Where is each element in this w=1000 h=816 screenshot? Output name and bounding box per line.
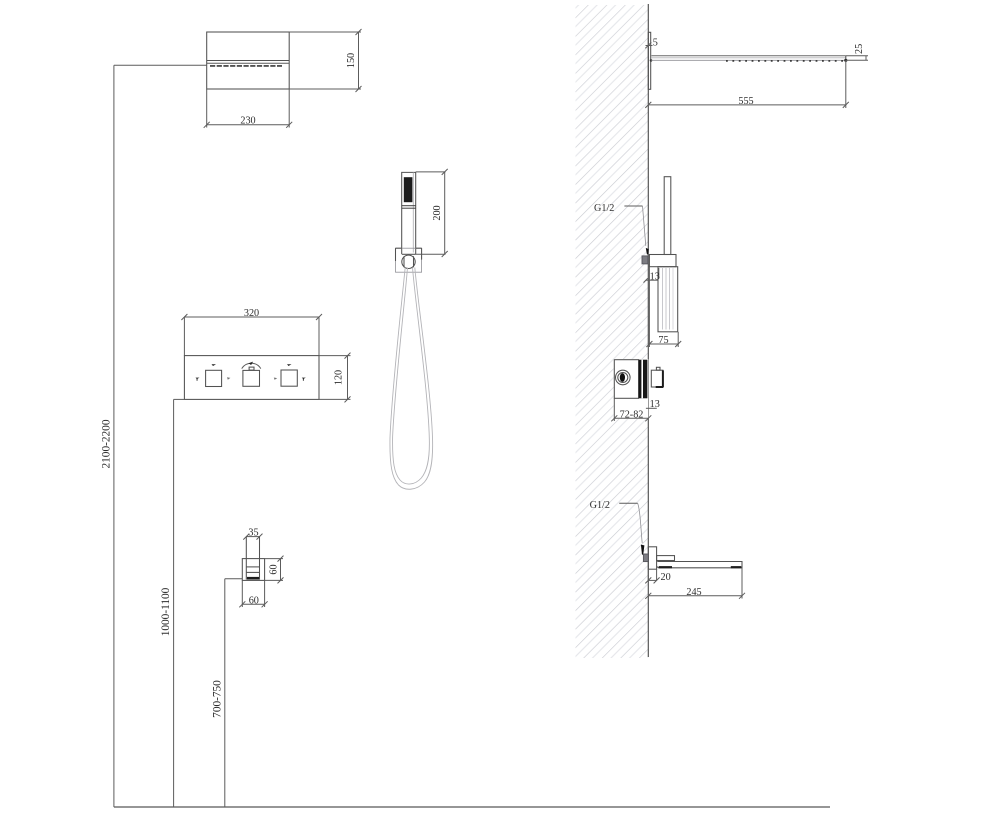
svg-text:150: 150 <box>346 53 357 68</box>
svg-text:G1/2: G1/2 <box>594 203 614 214</box>
svg-text:35: 35 <box>248 528 258 539</box>
svg-text:60: 60 <box>269 564 280 574</box>
svg-text:200: 200 <box>432 205 443 220</box>
svg-text:120: 120 <box>334 370 345 385</box>
svg-text:25: 25 <box>854 44 865 54</box>
svg-text:700-750: 700-750 <box>212 680 224 718</box>
svg-text:1000-1100: 1000-1100 <box>160 587 172 636</box>
svg-text:555: 555 <box>738 96 753 107</box>
svg-text:G1/2: G1/2 <box>590 500 610 511</box>
svg-text:320: 320 <box>244 308 259 319</box>
svg-text:60: 60 <box>249 595 259 606</box>
svg-text:13: 13 <box>650 399 660 410</box>
svg-text:2100-2200: 2100-2200 <box>101 419 113 468</box>
svg-text:5: 5 <box>653 37 658 48</box>
svg-text:13: 13 <box>650 271 660 282</box>
svg-text:72-82: 72-82 <box>620 409 644 420</box>
svg-text:20: 20 <box>661 572 671 583</box>
svg-text:245: 245 <box>686 587 701 598</box>
svg-text:230: 230 <box>240 116 255 127</box>
svg-text:75: 75 <box>658 335 668 346</box>
